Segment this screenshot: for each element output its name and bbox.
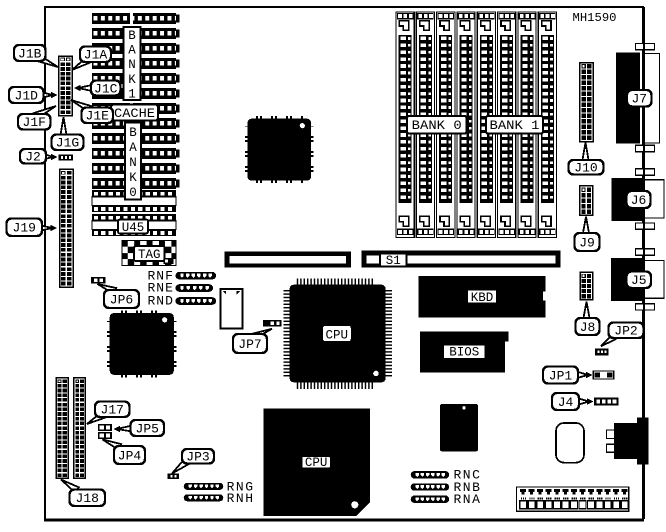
svg-text:BANK 1: BANK 1 xyxy=(490,118,540,133)
svg-text:J1D: J1D xyxy=(15,88,39,103)
svg-text:K: K xyxy=(129,171,137,185)
svg-text:J1E: J1E xyxy=(86,109,110,124)
svg-text:J8: J8 xyxy=(580,320,596,335)
svg-text:JP6: JP6 xyxy=(110,292,133,307)
svg-text:B: B xyxy=(129,126,137,140)
svg-text:RNA: RNA xyxy=(454,492,482,507)
svg-text:J18: J18 xyxy=(76,491,99,506)
svg-text:CPU: CPU xyxy=(326,328,349,342)
svg-text:J6: J6 xyxy=(631,193,647,208)
svg-text:1: 1 xyxy=(128,87,136,101)
svg-text:RND: RND xyxy=(148,294,174,309)
svg-text:JP7: JP7 xyxy=(238,337,261,352)
svg-text:JP4: JP4 xyxy=(118,448,142,463)
svg-text:N: N xyxy=(128,58,136,72)
svg-text:JP2: JP2 xyxy=(614,324,637,339)
svg-text:J9: J9 xyxy=(579,235,595,250)
svg-text:RNH: RNH xyxy=(227,491,255,506)
svg-text:N: N xyxy=(129,156,137,170)
svg-text:J1B: J1B xyxy=(18,46,42,61)
svg-text:B: B xyxy=(128,29,136,43)
svg-text:J17: J17 xyxy=(101,403,124,418)
svg-text:J7: J7 xyxy=(631,92,647,107)
svg-text:JP5: JP5 xyxy=(136,421,159,436)
svg-text:J2: J2 xyxy=(25,150,41,165)
svg-text:CPU: CPU xyxy=(305,456,328,470)
svg-text:J1F: J1F xyxy=(23,115,46,130)
svg-text:J19: J19 xyxy=(13,221,36,236)
svg-text:K: K xyxy=(128,73,136,87)
svg-text:A: A xyxy=(129,141,137,155)
svg-text:MH1590: MH1590 xyxy=(573,11,617,25)
svg-text:JP1: JP1 xyxy=(549,368,573,383)
svg-text:TAG: TAG xyxy=(138,248,161,262)
svg-text:S1: S1 xyxy=(386,254,401,268)
svg-text:J10: J10 xyxy=(574,161,597,176)
svg-text:J1C: J1C xyxy=(94,81,118,96)
svg-text:J1G: J1G xyxy=(56,136,79,151)
svg-text:BIOS: BIOS xyxy=(449,346,479,360)
svg-text:BANK 0: BANK 0 xyxy=(412,118,462,133)
svg-text:0: 0 xyxy=(129,186,137,200)
svg-text:A: A xyxy=(128,44,136,58)
svg-text:JP3: JP3 xyxy=(186,450,209,465)
svg-text:U45: U45 xyxy=(122,221,145,235)
svg-text:J5: J5 xyxy=(631,273,647,288)
svg-text:KBD: KBD xyxy=(471,291,494,305)
svg-text:J1A: J1A xyxy=(84,48,108,63)
svg-text:CACHE: CACHE xyxy=(114,106,155,121)
svg-text:J4: J4 xyxy=(558,395,574,410)
